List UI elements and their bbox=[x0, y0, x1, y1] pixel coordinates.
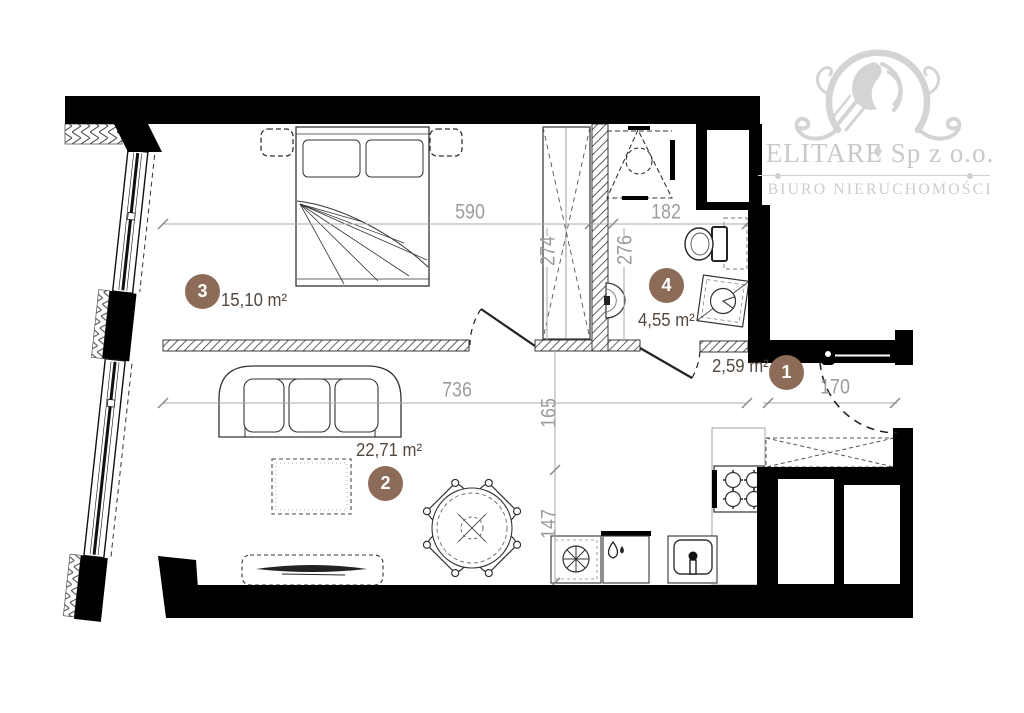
shaft-opening bbox=[707, 130, 749, 202]
room-badge-1: 1 bbox=[769, 355, 804, 390]
dimension-bedroom-width: 590 bbox=[455, 202, 485, 223]
logo-divider bbox=[758, 175, 990, 176]
room-area-4: 4,55 m² bbox=[638, 310, 695, 331]
room-area-1: 2,59 m² bbox=[712, 356, 769, 377]
dimension-living-width: 736 bbox=[442, 380, 472, 401]
dimension-hall-depth: 165 bbox=[539, 398, 560, 428]
dimension-bathroom-width: 182 bbox=[651, 202, 681, 223]
dimension-entry-width: 170 bbox=[820, 377, 850, 398]
fridge-cabinet bbox=[766, 438, 894, 467]
wardrobe bbox=[543, 127, 590, 339]
dimension-bathroom-height: 276 bbox=[615, 235, 636, 265]
bedroom-door bbox=[470, 309, 535, 346]
dimension-wardrobe-height: 274 bbox=[538, 236, 559, 266]
nightstand-left bbox=[261, 129, 293, 156]
room-badge-3: 3 bbox=[185, 274, 220, 309]
kitchen-cabinet bbox=[601, 531, 651, 583]
insulation-strip bbox=[65, 124, 122, 144]
logo-company-name: ELITARE Sp z o.o. bbox=[752, 138, 1008, 169]
window-wall bbox=[63, 148, 155, 622]
sofa bbox=[219, 366, 401, 437]
logo-divider-dot-right bbox=[967, 173, 973, 179]
logo-tagline: BIURO NIERUCHOMOŚCI bbox=[752, 181, 1008, 199]
shower bbox=[607, 126, 675, 200]
room-area-3: 15,10 m² bbox=[221, 290, 287, 311]
dimension-kitchen-depth: 147 bbox=[539, 509, 560, 539]
logo-divider-dot-left bbox=[775, 173, 781, 179]
room-badge-4: 4 bbox=[649, 268, 684, 303]
washing-machine bbox=[697, 275, 749, 327]
toilet bbox=[685, 218, 747, 269]
coffee-table bbox=[272, 459, 351, 514]
bathroom-door bbox=[640, 348, 700, 378]
dining-table bbox=[432, 488, 512, 568]
kitchen-sink bbox=[668, 536, 717, 583]
bed bbox=[296, 127, 429, 286]
nightstand-right bbox=[430, 129, 462, 156]
dishwasher bbox=[551, 536, 601, 583]
tv-stand bbox=[242, 555, 383, 585]
wall-window-right bbox=[844, 485, 900, 584]
stove bbox=[712, 466, 764, 512]
room-area-2: 22,71 m² bbox=[356, 440, 422, 461]
wall-window-left bbox=[778, 479, 834, 584]
room-badge-2: 2 bbox=[368, 466, 403, 501]
bathroom-sink bbox=[604, 283, 625, 318]
floorplan-page: 590 182 274 276 736 165 147 170 3 15,10 … bbox=[0, 0, 1024, 713]
